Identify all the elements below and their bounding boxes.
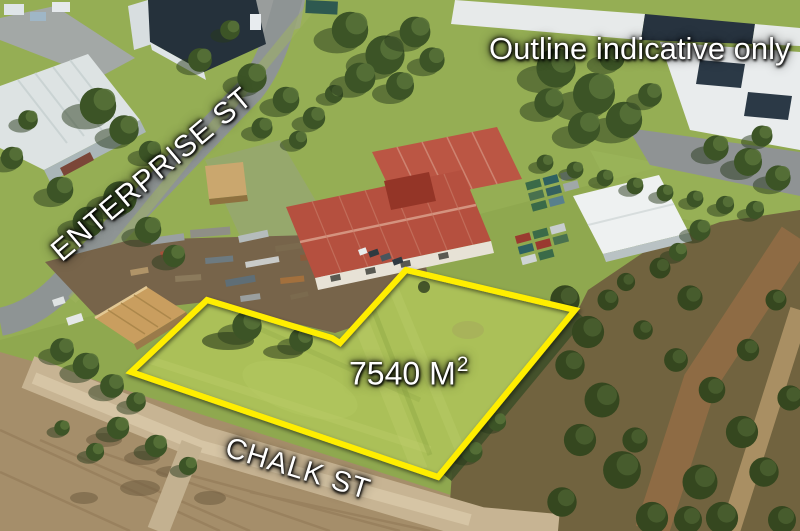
disclaimer-text: Outline indicative only (489, 32, 791, 66)
area-label: 7540 M2 (349, 355, 468, 392)
aerial-scene (0, 0, 800, 531)
small-tan-shed (205, 162, 248, 205)
aerial-photo: Outline indicative only ENTERPRISE ST 75… (0, 0, 800, 531)
area-value: 7540 M (349, 356, 456, 392)
area-superscript: 2 (457, 353, 469, 376)
